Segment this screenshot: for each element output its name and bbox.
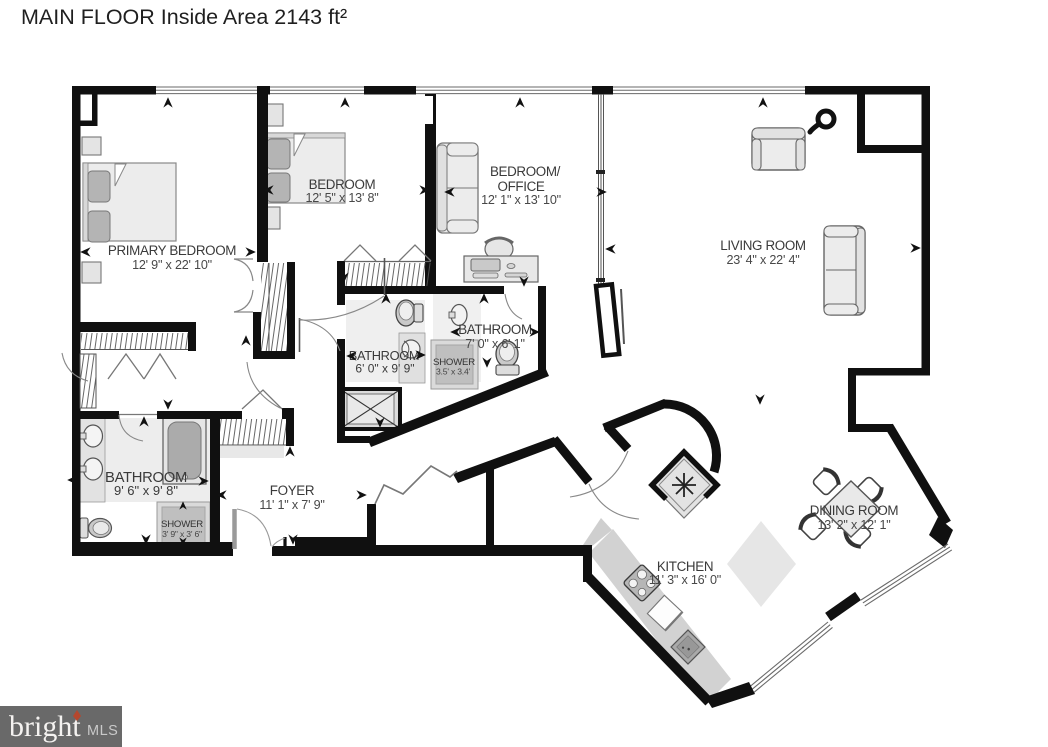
svg-text:6' 0" x 9' 9": 6' 0" x 9' 9" <box>355 362 414 376</box>
svg-text:3' 9" x 3' 6": 3' 9" x 3' 6" <box>162 529 202 539</box>
svg-text:OFFICE: OFFICE <box>498 179 545 194</box>
svg-text:23' 4" x 22' 4": 23' 4" x 22' 4" <box>726 253 799 267</box>
svg-text:KITCHEN: KITCHEN <box>657 559 713 574</box>
svg-text:MAIN FLOOR Inside Area 2143 ft: MAIN FLOOR Inside Area 2143 ft² <box>21 5 347 29</box>
svg-text:13' 2" x 12' 1": 13' 2" x 12' 1" <box>817 518 890 532</box>
svg-text:11' 1" x 7' 9": 11' 1" x 7' 9" <box>259 498 324 512</box>
svg-text:LIVING ROOM: LIVING ROOM <box>720 238 806 253</box>
svg-text:BEDROOM: BEDROOM <box>309 177 376 192</box>
svg-text:MLS: MLS <box>87 723 118 739</box>
svg-text:12' 9" x 22' 10": 12' 9" x 22' 10" <box>132 258 212 272</box>
svg-text:12' 1" x 13' 10": 12' 1" x 13' 10" <box>481 193 561 207</box>
svg-text:DINING ROOM: DINING ROOM <box>810 503 899 518</box>
svg-text:bright: bright <box>9 710 81 743</box>
svg-text:BEDROOM/: BEDROOM/ <box>490 164 561 179</box>
svg-text:12' 5" x 13' 8": 12' 5" x 13' 8" <box>305 191 378 205</box>
svg-text:BATHROOM: BATHROOM <box>458 322 532 337</box>
svg-text:PRIMARY BEDROOM: PRIMARY BEDROOM <box>108 243 236 258</box>
svg-text:7' 0" x 6' 1": 7' 0" x 6' 1" <box>465 337 524 351</box>
svg-text:3.5' x 3.4': 3.5' x 3.4' <box>436 367 471 377</box>
svg-text:FOYER: FOYER <box>270 483 315 498</box>
svg-text:11' 3" x 16' 0": 11' 3" x 16' 0" <box>649 573 721 587</box>
svg-text:9' 6" x 9' 8": 9' 6" x 9' 8" <box>114 483 178 498</box>
